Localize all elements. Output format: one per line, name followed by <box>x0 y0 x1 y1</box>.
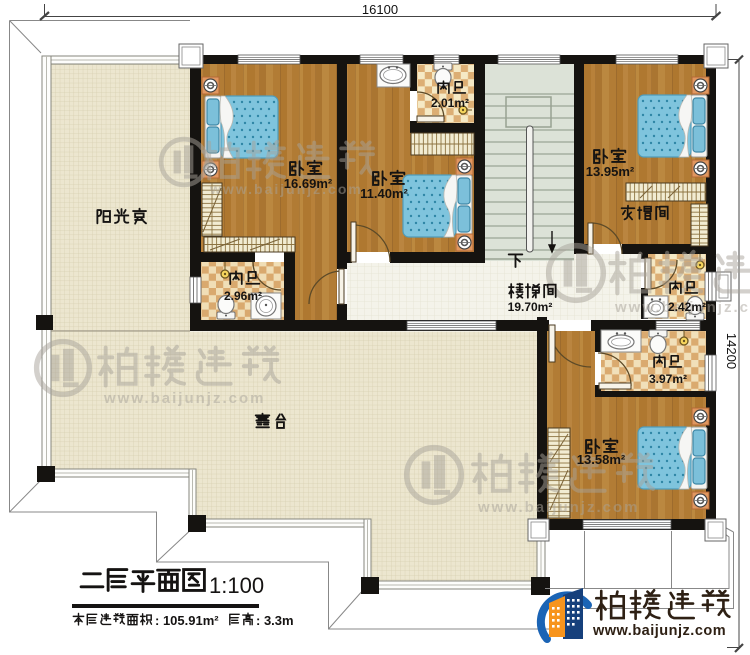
svg-text:www.baijunjz.com: www.baijunjz.com <box>592 623 726 639</box>
svg-text:2.42m²: 2.42m² <box>668 300 706 314</box>
svg-text:2.01m²: 2.01m² <box>431 96 469 110</box>
svg-text:16.69m²: 16.69m² <box>284 176 333 191</box>
svg-text:www.baijunjz.com: www.baijunjz.com <box>103 390 265 407</box>
svg-text:: 3.3m: : 3.3m <box>256 613 294 628</box>
svg-text:: 105.91m²: : 105.91m² <box>155 613 219 628</box>
svg-text:2.96m²: 2.96m² <box>224 289 262 303</box>
svg-text:13.95m²: 13.95m² <box>586 164 635 179</box>
svg-text:13.58m²: 13.58m² <box>577 452 626 467</box>
svg-text:1:100: 1:100 <box>209 573 264 598</box>
svg-text:16100: 16100 <box>362 2 398 17</box>
svg-text:www.baijunjz.com: www.baijunjz.com <box>477 499 639 516</box>
svg-text:14200: 14200 <box>724 333 739 369</box>
svg-text:19.70m²: 19.70m² <box>508 300 553 314</box>
svg-text:11.40m²: 11.40m² <box>360 186 408 201</box>
svg-text:3.97m²: 3.97m² <box>649 372 687 386</box>
